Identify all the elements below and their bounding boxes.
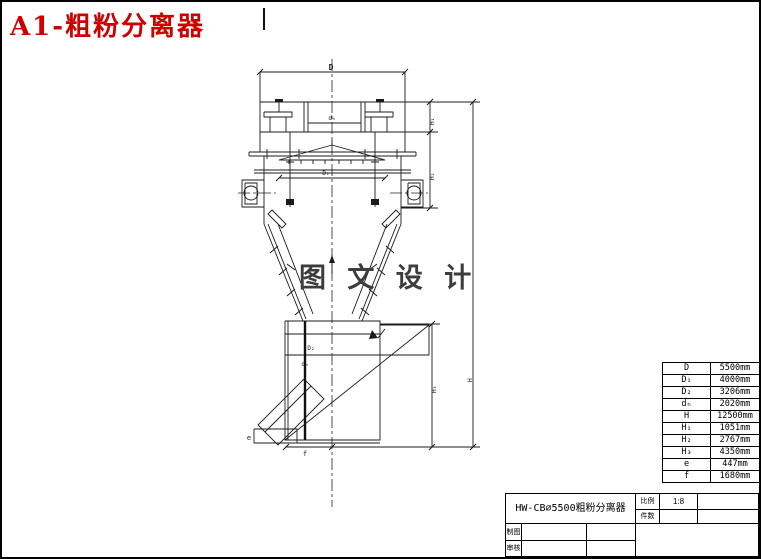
dim-label-dh-hood: dₕ (328, 115, 335, 122)
dim-label-H1: H₁ (429, 118, 436, 125)
dim-value: 447mm (711, 459, 760, 471)
dim-value: 2767mm (711, 435, 760, 447)
empty-cell (697, 509, 759, 524)
dim-symbol: D (663, 363, 711, 375)
table-row: e447mm (663, 459, 760, 471)
dim-label-H: H (467, 378, 474, 382)
empty-cell (521, 540, 587, 557)
dim-label-D2: D₂ (307, 345, 314, 352)
empty-cell (521, 523, 587, 541)
empty-cell (659, 509, 698, 524)
drawing-sheet: A1-粗粉分离器 D dₕ D₁ D₂ dₕ e f H₁ H₂ H₃ H 图 … (0, 0, 761, 559)
dim-symbol: H₁ (663, 423, 711, 435)
table-row: dₕ2020mm (663, 399, 760, 411)
empty-cell (586, 540, 636, 557)
watermark-text: 图 文 设 计 (299, 256, 477, 295)
table-row: f1680mm (663, 471, 760, 483)
empty-cell (697, 493, 759, 510)
table-row: H₁1051mm (663, 423, 760, 435)
title-block: HW-CB∅5500粗粉分离器 比例 1:8 件数 制图 审核 (505, 493, 759, 557)
dim-value: 12500mm (711, 411, 760, 423)
dim-value: 2020mm (711, 399, 760, 411)
dim-value: 5500mm (711, 363, 760, 375)
drawing-title-cell: HW-CB∅5500粗粉分离器 (505, 493, 636, 524)
scale-label-cell: 比例 (635, 493, 660, 510)
table-row: H12500mm (663, 411, 760, 423)
dim-value: 1680mm (711, 471, 760, 483)
quantity-label-cell: 件数 (635, 509, 660, 524)
bolt-nuts (275, 99, 384, 339)
dim-value: 1051mm (711, 423, 760, 435)
dimension-table: D5500mm D₁4000mm D₂3206mm dₕ2020mm H1250… (662, 362, 760, 483)
dim-label-e: e (247, 434, 251, 442)
dim-value: 4350mm (711, 447, 760, 459)
dim-label-H2: H₂ (429, 173, 436, 180)
dim-value: 3206mm (711, 387, 760, 399)
scale-value-cell: 1:8 (659, 493, 698, 510)
dim-label-dh-pipe: dₕ (301, 361, 308, 368)
dim-symbol: e (663, 459, 711, 471)
reviewer-label-cell: 审核 (505, 540, 522, 557)
table-row: D₁4000mm (663, 375, 760, 387)
table-row: D5500mm (663, 363, 760, 375)
dim-symbol: D₂ (663, 387, 711, 399)
table-row: H₂2767mm (663, 435, 760, 447)
dim-symbol: H (663, 411, 711, 423)
dim-symbol: H₂ (663, 435, 711, 447)
table-row: D₂3206mm (663, 387, 760, 399)
drafter-label-cell: 制图 (505, 523, 522, 541)
dim-value: 4000mm (711, 375, 760, 387)
empty-cell (635, 523, 759, 557)
dim-label-H3: H₃ (431, 386, 438, 393)
dim-label-D1: D₁ (322, 170, 329, 177)
dim-label-f: f (303, 450, 307, 458)
dim-label-D: D (329, 63, 334, 72)
dim-symbol: f (663, 471, 711, 483)
dim-symbol: dₕ (663, 399, 711, 411)
table-row: H₃4350mm (663, 447, 760, 459)
dim-symbol: D₁ (663, 375, 711, 387)
dim-symbol: H₃ (663, 447, 711, 459)
empty-cell (586, 523, 636, 541)
